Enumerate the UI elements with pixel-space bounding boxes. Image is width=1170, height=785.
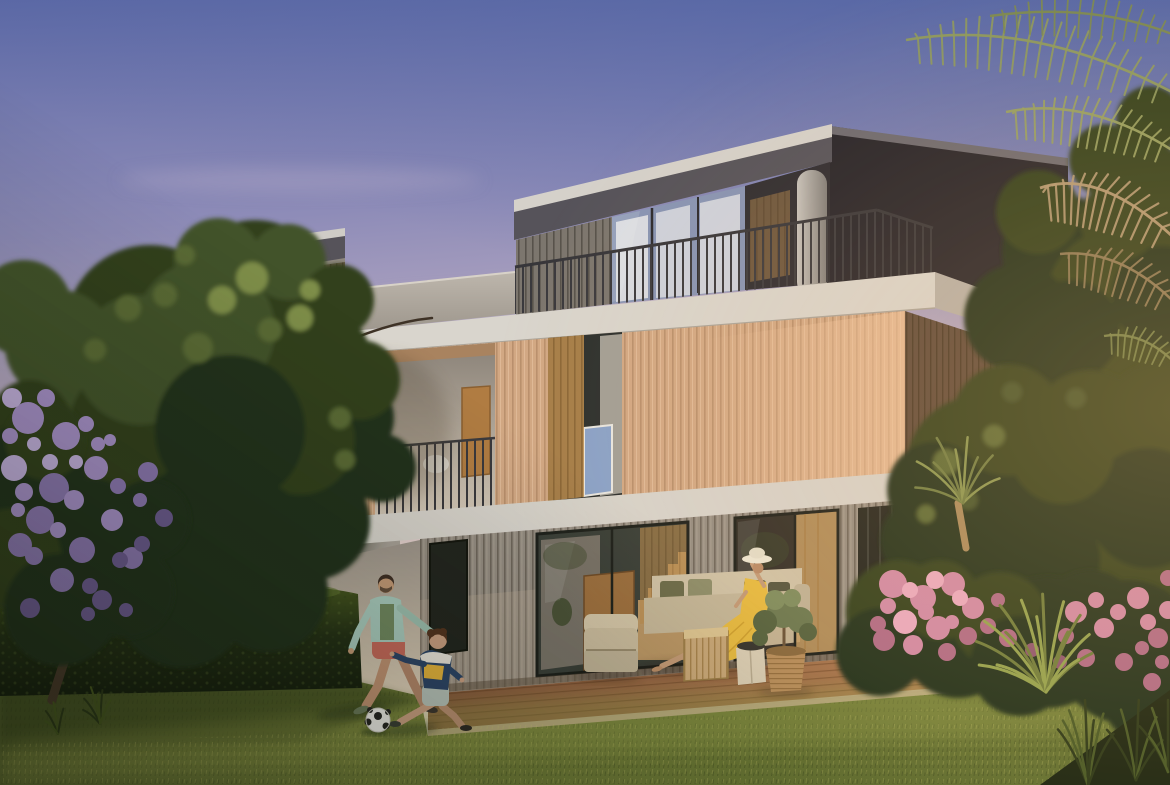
corner-vignette (0, 0, 1170, 785)
render-canvas (0, 0, 1170, 785)
architectural-rendering (0, 0, 1170, 785)
